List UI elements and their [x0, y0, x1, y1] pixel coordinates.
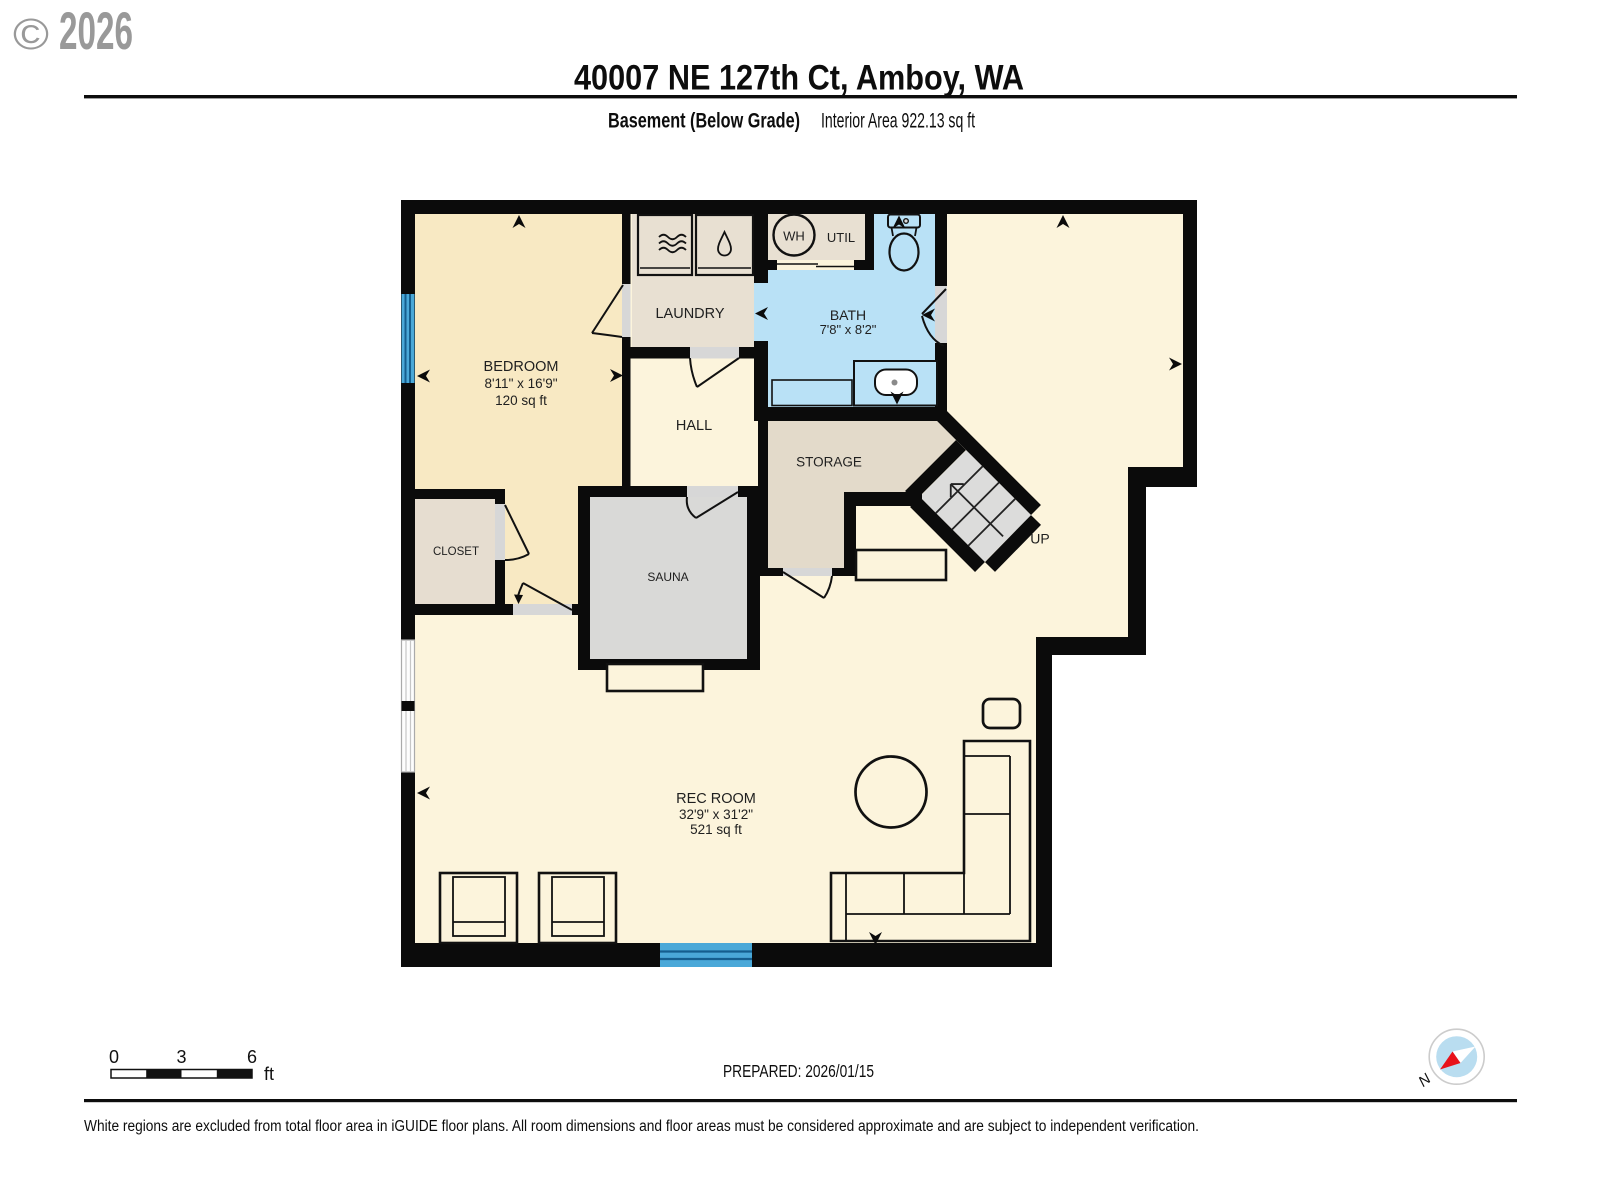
svg-text:N: N [1415, 1070, 1434, 1090]
svg-text:6: 6 [247, 1047, 257, 1067]
svg-text:REC ROOM: REC ROOM [676, 791, 756, 807]
svg-text:BATH: BATH [830, 307, 866, 323]
svg-text:120 sq ft: 120 sq ft [495, 393, 547, 408]
svg-text:521 sq ft: 521 sq ft [690, 822, 742, 837]
svg-text:LAUNDRY: LAUNDRY [655, 306, 724, 322]
svg-text:7'8" x 8'2": 7'8" x 8'2" [820, 322, 877, 337]
svg-text:BEDROOM: BEDROOM [484, 359, 559, 375]
svg-text:SAUNA: SAUNA [647, 570, 688, 584]
svg-text:UP: UP [1030, 531, 1049, 547]
svg-text:ft: ft [264, 1064, 274, 1084]
svg-text:8'11" x 16'9": 8'11" x 16'9" [484, 376, 557, 391]
svg-text:STORAGE: STORAGE [796, 455, 862, 470]
svg-text:UTIL: UTIL [827, 230, 855, 245]
svg-text:32'9" x 31'2": 32'9" x 31'2" [679, 807, 753, 822]
svg-text:HALL: HALL [676, 418, 712, 434]
svg-text:CLOSET: CLOSET [433, 546, 479, 558]
svg-text:WH: WH [783, 229, 805, 244]
svg-text:0: 0 [109, 1047, 119, 1067]
svg-text:3: 3 [176, 1047, 186, 1067]
